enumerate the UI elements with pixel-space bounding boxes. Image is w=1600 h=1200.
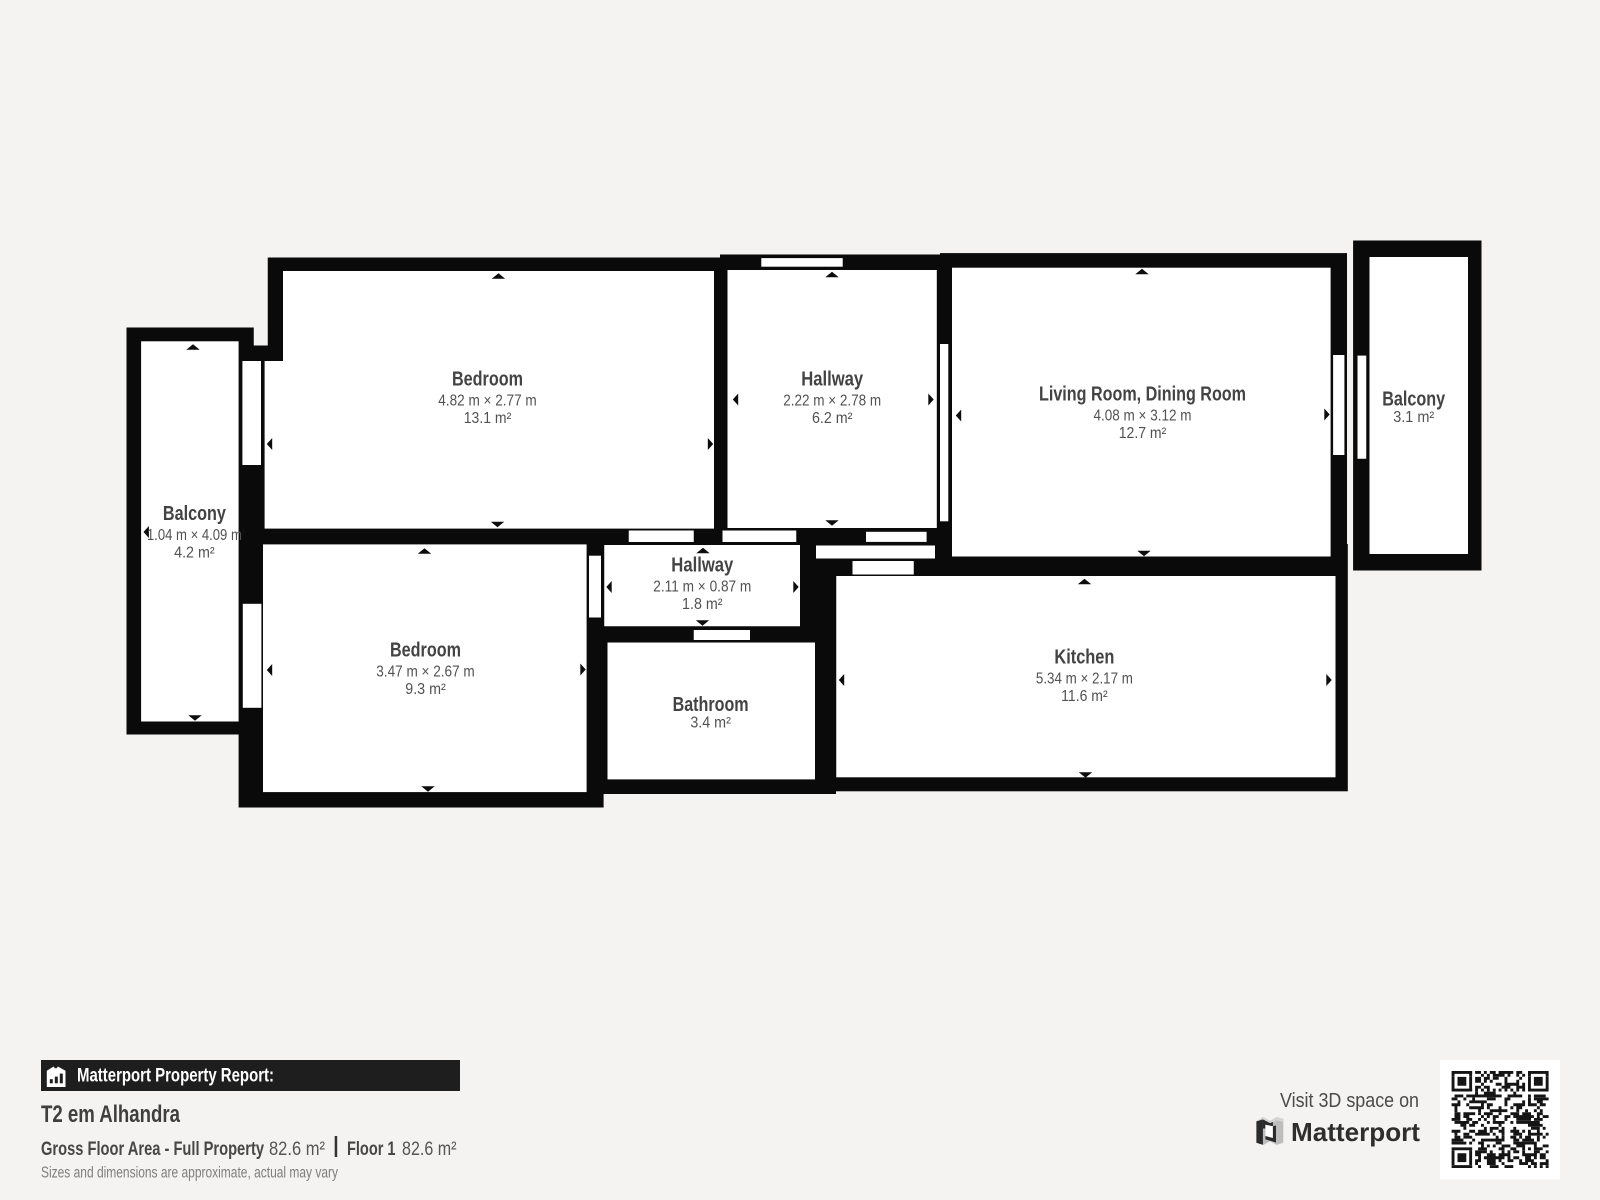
svg-text:Visit 3D space on: Visit 3D space on [1280, 1090, 1419, 1112]
svg-text:Floor 1: Floor 1 [347, 1138, 396, 1160]
svg-text:3.1 m²: 3.1 m² [1393, 409, 1434, 426]
svg-text:5.34 m × 2.17 m: 5.34 m × 2.17 m [1036, 670, 1133, 687]
svg-text:Bedroom: Bedroom [390, 639, 461, 661]
svg-text:Gross Floor Area - Full Proper: Gross Floor Area - Full Property [41, 1138, 264, 1160]
svg-text:Living Room, Dining Room: Living Room, Dining Room [1039, 384, 1246, 406]
svg-text:3.4 m²: 3.4 m² [690, 715, 731, 732]
svg-text:3.47 m × 2.67 m: 3.47 m × 2.67 m [376, 663, 475, 680]
svg-text:Hallway: Hallway [801, 369, 864, 391]
svg-text:Matterport: Matterport [1291, 1117, 1420, 1147]
svg-text:6.2 m²: 6.2 m² [812, 410, 853, 427]
svg-text:Bathroom: Bathroom [673, 694, 749, 716]
svg-text:4.82 m × 2.77 m: 4.82 m × 2.77 m [438, 393, 537, 410]
svg-text:1.8 m²: 1.8 m² [682, 596, 723, 613]
svg-text:Balcony: Balcony [1382, 389, 1446, 411]
svg-text:Hallway: Hallway [671, 555, 734, 577]
svg-text:13.1 m²: 13.1 m² [464, 410, 512, 427]
svg-text:Sizes and dimensions are appro: Sizes and dimensions are approximate, ac… [41, 1165, 338, 1182]
svg-text:Bedroom: Bedroom [452, 369, 523, 391]
svg-text:9.3 m²: 9.3 m² [405, 681, 446, 698]
svg-text:T2 em Alhandra: T2 em Alhandra [41, 1101, 181, 1128]
svg-text:11.6 m²: 11.6 m² [1061, 688, 1108, 705]
svg-text:Balcony: Balcony [163, 503, 227, 525]
svg-text:1.04 m × 4.09 m: 1.04 m × 4.09 m [147, 527, 242, 544]
svg-text:2.22 m × 2.78 m: 2.22 m × 2.78 m [783, 393, 881, 410]
svg-text:Kitchen: Kitchen [1054, 646, 1114, 668]
svg-text:4.2 m²: 4.2 m² [174, 545, 215, 562]
svg-text:12.7 m²: 12.7 m² [1119, 425, 1167, 442]
svg-text:82.6 m²: 82.6 m² [269, 1138, 325, 1160]
svg-text:82.6 m²: 82.6 m² [402, 1138, 457, 1160]
svg-text:2.11 m × 0.87 m: 2.11 m × 0.87 m [653, 579, 751, 596]
svg-text:Matterport Property Report:: Matterport Property Report: [77, 1066, 274, 1087]
svg-text:4.08 m × 3.12 m: 4.08 m × 3.12 m [1094, 408, 1192, 425]
